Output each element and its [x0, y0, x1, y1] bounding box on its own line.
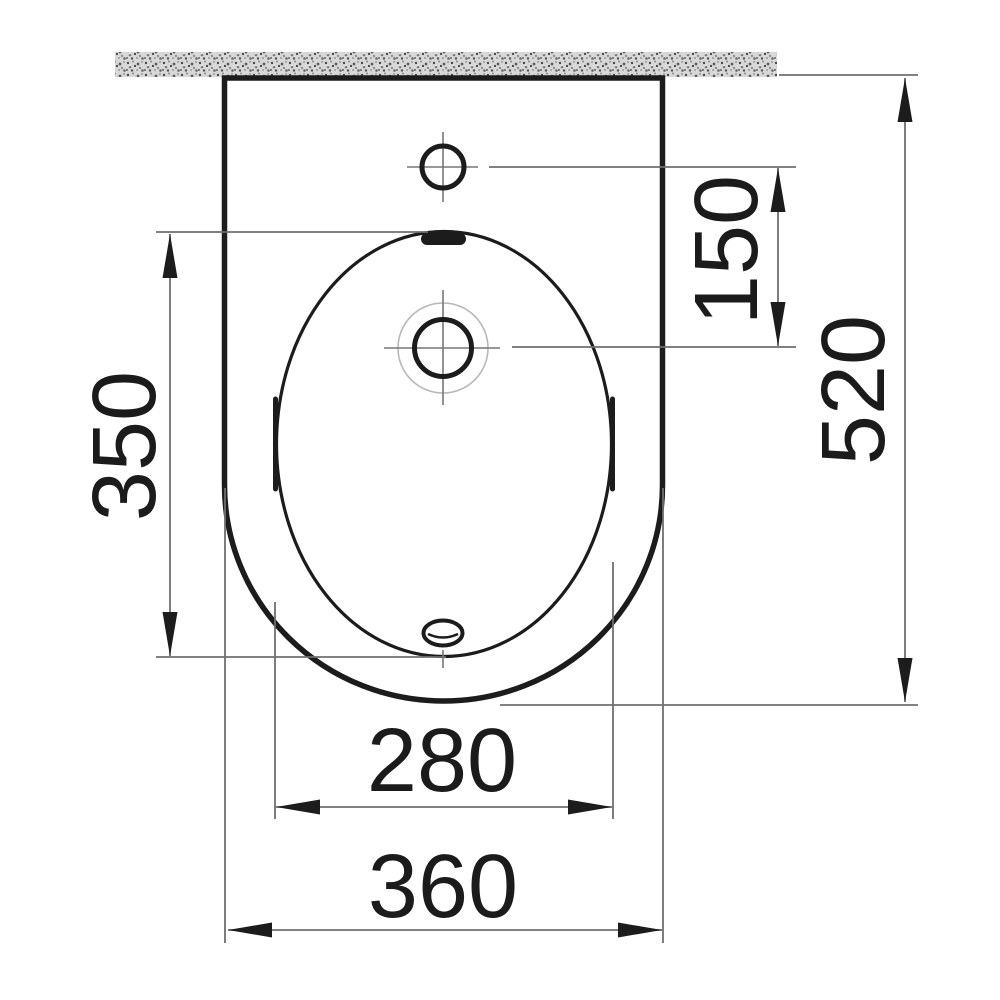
dimension-label-150: 150: [682, 175, 772, 325]
arrow-520-up: [898, 78, 913, 122]
bidet-dimension-drawing: 150 520 350 280 360: [0, 0, 1000, 1000]
arrow-360-left: [228, 923, 272, 938]
arrow-280-left: [276, 800, 320, 815]
dimension-label-350: 350: [80, 371, 170, 521]
drain-hole: [424, 621, 463, 646]
wall-hatch: [115, 52, 777, 77]
dimension-label-280: 280: [367, 716, 517, 806]
arrow-360-right: [618, 923, 662, 938]
dimension-label-520: 520: [809, 315, 899, 465]
arrow-280-right: [568, 800, 612, 815]
dimension-label-360: 360: [368, 842, 518, 932]
overflow-slot: [421, 233, 466, 245]
basin-outline: [277, 232, 612, 657]
arrow-520-down: [898, 658, 913, 702]
arrow-350-up: [163, 234, 178, 278]
arrow-350-down: [163, 612, 178, 656]
